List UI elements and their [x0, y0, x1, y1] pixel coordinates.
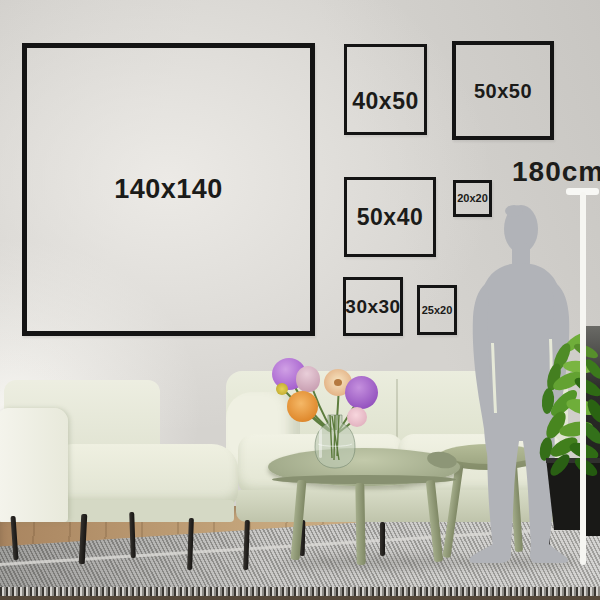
frame-label-25x20: 25x20 [422, 305, 453, 316]
potted-plant [534, 329, 600, 535]
room-scene: 140x140 40x50 50x50 50x40 20x20 30x30 25… [0, 0, 600, 600]
rug-shadow-strip [0, 596, 600, 600]
flower-purple-pom [345, 376, 378, 409]
frame-25x20: 25x20 [417, 285, 457, 335]
flower-pink-tulip [296, 366, 320, 392]
frame-label-40x50: 40x50 [352, 90, 418, 113]
frame-50x50: 50x50 [452, 41, 554, 140]
flower-poppy-center [334, 379, 342, 386]
armchair-left-armrest [0, 408, 68, 522]
sofa-leg [380, 522, 385, 556]
flower-yellow-billy-button [276, 383, 288, 395]
coffee-table-leg [355, 483, 365, 565]
frame-label-140x140: 140x140 [114, 176, 223, 203]
plant-pot-rim [546, 458, 600, 463]
frame-label-30x30: 30x30 [345, 297, 400, 316]
table-shadow [280, 556, 480, 569]
plant-leaves [538, 330, 600, 463]
frame-30x30: 30x30 [343, 277, 403, 336]
armchair-seat-cushion [52, 444, 238, 508]
flower-orange-dahlia [287, 391, 318, 422]
frame-50x40: 50x40 [344, 177, 436, 257]
frame-140x140: 140x140 [22, 43, 315, 336]
measure-line [580, 192, 586, 565]
frame-label-50x50: 50x50 [474, 81, 532, 101]
frame-label-50x40: 50x40 [357, 206, 423, 229]
flower-pink-rose [347, 407, 367, 427]
frame-40x50: 40x50 [344, 44, 427, 135]
height-label: 180cm [512, 156, 600, 188]
